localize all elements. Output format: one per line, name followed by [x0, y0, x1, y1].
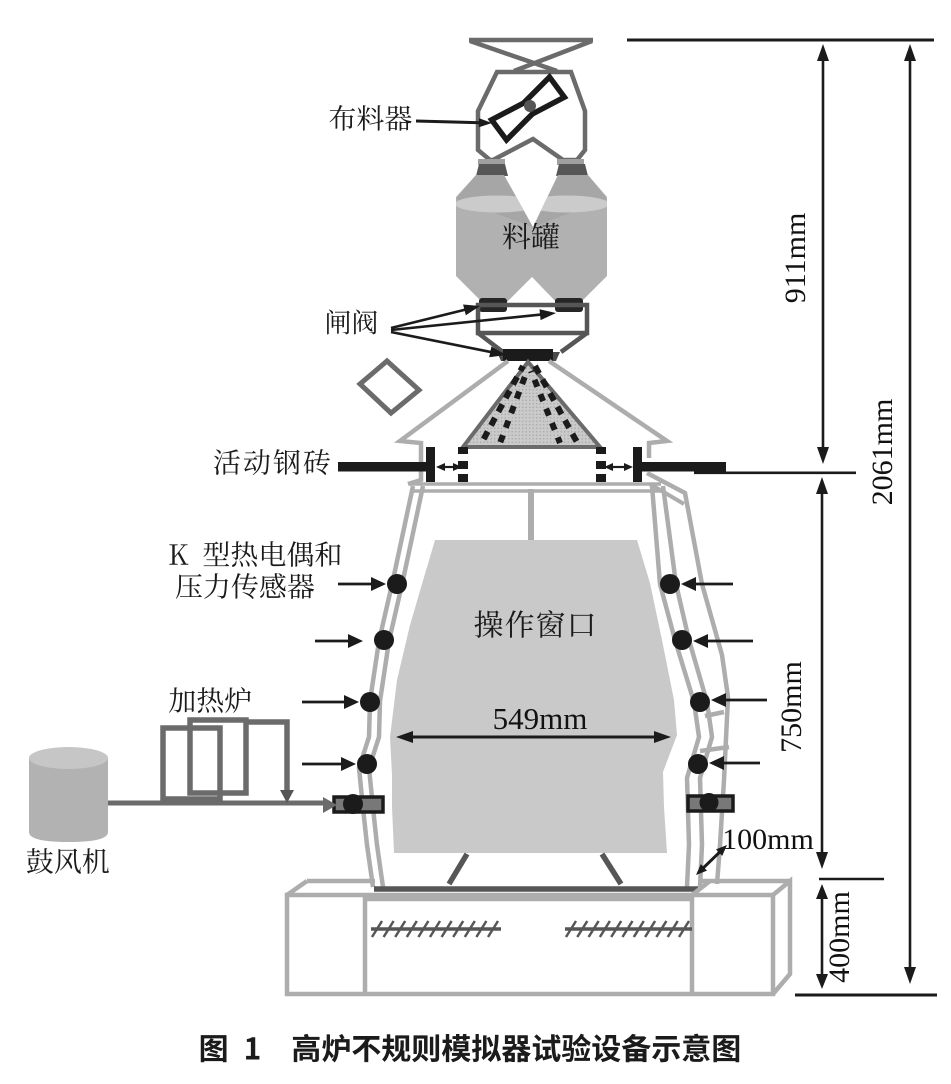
svg-text:100mm: 100mm	[722, 823, 814, 856]
svg-text:2061mm: 2061mm	[866, 399, 899, 506]
svg-text:911mm: 911mm	[779, 213, 812, 304]
svg-text:400mm: 400mm	[823, 891, 856, 983]
svg-text:549mm: 549mm	[493, 701, 588, 736]
svg-text:750mm: 750mm	[775, 661, 808, 753]
